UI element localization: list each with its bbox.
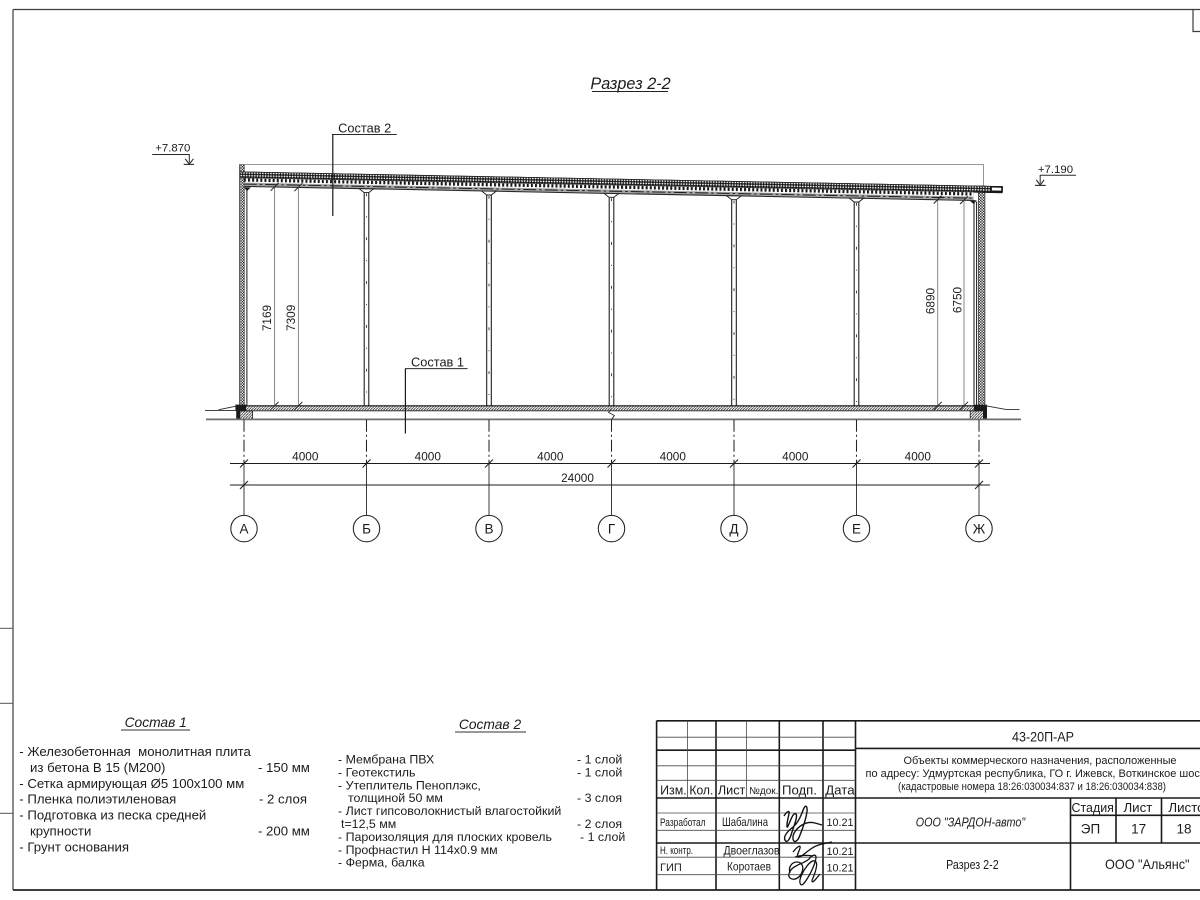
- svg-text:- Грунт основания: - Грунт основания: [19, 839, 129, 854]
- svg-text:толщиной 50 мм: толщиной 50 мм: [348, 791, 443, 805]
- svg-text:Состав 2: Состав 2: [338, 121, 391, 136]
- svg-text:10.21: 10.21: [826, 846, 853, 858]
- svg-text:Разрез 2-2: Разрез 2-2: [590, 75, 670, 93]
- svg-text:№док.: №док.: [749, 786, 778, 797]
- svg-text:- Геотекстиль: - Геотекстиль: [338, 765, 415, 779]
- svg-text:В: В: [484, 521, 493, 536]
- svg-text:+7.190: +7.190: [1038, 164, 1073, 176]
- svg-text:Г: Г: [608, 521, 616, 536]
- svg-text:Стадия: Стадия: [1072, 800, 1114, 815]
- svg-text:4000: 4000: [537, 449, 564, 463]
- svg-text:ООО "Альянс": ООО "Альянс": [1105, 856, 1190, 872]
- svg-text:4000: 4000: [660, 449, 687, 463]
- svg-text:24000: 24000: [561, 471, 594, 485]
- svg-text:- Подготовка из песка средней: - Подготовка из песка средней: [19, 808, 206, 823]
- svg-text:- Пленка полиэтиленовая: - Пленка полиэтиленовая: [19, 792, 176, 807]
- svg-text:10.21: 10.21: [826, 862, 853, 874]
- svg-text:Разрез 2-2: Разрез 2-2: [946, 858, 999, 872]
- svg-text:- Ферма, балка: - Ферма, балка: [338, 856, 425, 870]
- svg-text:10.21: 10.21: [826, 817, 853, 829]
- svg-text:из бетона В 15 (М200): из бетона В 15 (М200): [30, 760, 165, 775]
- svg-text:- Сетка армирующая Ø5 100х100: - Сетка армирующая Ø5 100х100 мм: [19, 776, 244, 791]
- svg-text:Изм.: Изм.: [660, 783, 687, 798]
- svg-text:7309: 7309: [284, 305, 298, 331]
- svg-text:Лист: Лист: [718, 783, 746, 798]
- svg-text:- 1 слой: - 1 слой: [577, 753, 622, 767]
- svg-text:t=12,5 мм: t=12,5 мм: [341, 817, 396, 831]
- svg-text:ООО "ЗАРДОН-авто": ООО "ЗАРДОН-авто": [916, 816, 1026, 830]
- svg-text:Коротаев: Коротаев: [727, 860, 771, 874]
- svg-text:Двоеглазов: Двоеглазов: [724, 843, 780, 857]
- svg-text:7169: 7169: [260, 305, 274, 331]
- svg-text:Состав 1: Состав 1: [125, 715, 187, 730]
- svg-text:А: А: [239, 521, 248, 536]
- svg-text:17: 17: [1131, 822, 1146, 837]
- svg-text:Б: Б: [362, 521, 371, 536]
- svg-text:Шабалина: Шабалина: [722, 815, 768, 829]
- svg-text:по адресу: Удмуртская республи: по адресу: Удмуртская республика, ГО г. …: [866, 768, 1200, 780]
- svg-text:ЭП: ЭП: [1081, 822, 1100, 837]
- svg-text:- 3 слоя: - 3 слоя: [577, 791, 622, 805]
- svg-text:- Лист гипсоволокнистый влагос: - Лист гипсоволокнистый влагостойкий: [338, 804, 561, 818]
- svg-text:4000: 4000: [415, 449, 442, 463]
- svg-text:- 200 мм: - 200 мм: [258, 824, 310, 839]
- svg-text:Разработал: Разработал: [660, 817, 706, 829]
- svg-text:Д: Д: [729, 521, 738, 536]
- svg-text:крупности: крупности: [30, 824, 91, 839]
- svg-text:- Пароизоляция для плоских кро: - Пароизоляция для плоских кровель: [338, 830, 552, 844]
- svg-text:- Профнастил Н 114х0.9 мм: - Профнастил Н 114х0.9 мм: [338, 843, 498, 857]
- svg-text:- 1 слой: - 1 слой: [580, 830, 625, 844]
- svg-text:- Утеплитель Пеноплэкс,: - Утеплитель Пеноплэкс,: [338, 778, 481, 792]
- svg-text:- 2 слоя: - 2 слоя: [259, 792, 307, 807]
- svg-text:+7.870: +7.870: [155, 143, 190, 155]
- svg-text:Состав 2: Состав 2: [459, 717, 522, 732]
- svg-text:Объекты коммерческого назначен: Объекты коммерческого назначения, распол…: [904, 755, 1177, 767]
- svg-text:6750: 6750: [950, 286, 964, 313]
- svg-text:(кадастровые номера 18:26:0300: (кадастровые номера 18:26:030034:837 и 1…: [898, 781, 1166, 793]
- svg-text:Листов: Листов: [1168, 800, 1200, 815]
- svg-text:Ж: Ж: [973, 521, 986, 536]
- svg-text:- 1 слой: - 1 слой: [577, 765, 622, 779]
- svg-text:- 150 мм: - 150 мм: [258, 760, 310, 775]
- svg-text:4000: 4000: [782, 449, 809, 463]
- svg-text:4000: 4000: [905, 449, 932, 463]
- svg-text:ГИП: ГИП: [660, 862, 682, 874]
- svg-text:- Мембрана ПВХ: - Мембрана ПВХ: [338, 753, 434, 767]
- svg-text:- Железобетонная монолитная п: - Железобетонная монолитная плита: [19, 744, 251, 759]
- svg-text:Кол.: Кол.: [689, 783, 713, 798]
- svg-text:Лист: Лист: [1123, 800, 1152, 815]
- svg-text:Дата: Дата: [825, 783, 855, 798]
- svg-text:18: 18: [1176, 822, 1191, 837]
- svg-text:- 2 слоя: - 2 слоя: [577, 817, 622, 831]
- svg-text:Подп.: Подп.: [782, 783, 817, 798]
- svg-text:Е: Е: [852, 521, 861, 536]
- svg-text:43-20П-АР: 43-20П-АР: [1012, 729, 1074, 745]
- svg-text:Состав 1: Состав 1: [411, 355, 464, 370]
- svg-text:Н. контр.: Н. контр.: [660, 845, 693, 857]
- svg-text:4000: 4000: [292, 449, 319, 463]
- svg-text:6890: 6890: [924, 287, 938, 314]
